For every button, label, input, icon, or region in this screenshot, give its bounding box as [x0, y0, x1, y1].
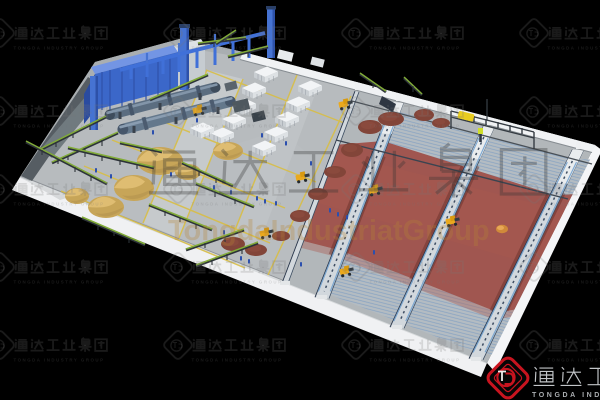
- svg-text:TongdaIndustriatGroup: TongdaIndustriatGroup: [168, 215, 490, 247]
- svg-text:TONGDA INDUS: TONGDA INDUS: [532, 392, 600, 399]
